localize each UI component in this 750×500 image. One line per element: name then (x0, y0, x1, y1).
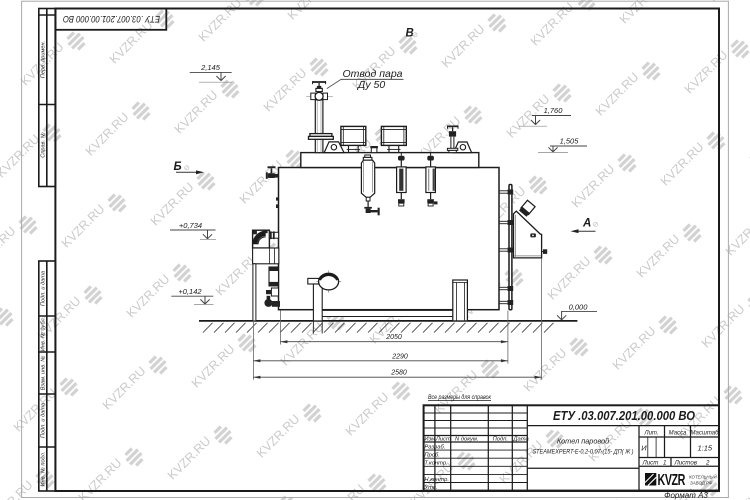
svg-text:KVZR.RU: KVZR.RU (740, 464, 750, 500)
svg-text:KVZR.RU: KVZR.RU (432, 368, 481, 417)
svg-text:+0,734: +0,734 (179, 221, 202, 230)
svg-text:STEAMEXPERT-E-0,2-0,07-(15- ДП: STEAMEXPERT-E-0,2-0,07-(15- ДП( Ж ) (533, 449, 634, 456)
svg-text:Инв. № дубл.: Инв. № дубл. (40, 317, 46, 351)
svg-text:Лист: Лист (435, 437, 451, 443)
svg-text:Взам. инв. №: Взам. инв. № (40, 356, 46, 391)
svg-text:KVZR.RU: KVZR.RU (83, 110, 132, 159)
svg-text:Проб.: Проб. (424, 453, 440, 459)
svg-text:2290: 2290 (391, 353, 408, 360)
svg-text:KVZR.RU: KVZR.RU (634, 232, 683, 281)
svg-text:Подп.: Подп. (493, 437, 508, 443)
svg-text:KVZR.RU: KVZR.RU (504, 92, 553, 141)
svg-text:Формат А3: Формат А3 (664, 491, 708, 500)
svg-text:Подп. и дата: Подп. и дата (40, 403, 46, 438)
svg-text:KVZR.RU: KVZR.RU (521, 346, 570, 395)
svg-text:ЕТУ .03.007.201.00.000 ВО: ЕТУ .03.007.201.00.000 ВО (553, 409, 695, 423)
svg-text:1:15: 1:15 (697, 443, 712, 452)
svg-text:1,505: 1,505 (560, 137, 580, 146)
svg-text:Справ. №: Справ. № (40, 132, 46, 157)
svg-text:Лит.: Лит. (643, 430, 658, 436)
svg-text:2: 2 (705, 460, 710, 467)
svg-text:1,760: 1,760 (544, 106, 564, 115)
svg-text:Листов: Листов (674, 460, 698, 467)
svg-text:KVZR.RU: KVZR.RU (497, 438, 546, 487)
svg-text:N докум.: N докум. (455, 437, 478, 443)
svg-text:Подп. и дата: Подп. и дата (40, 271, 46, 306)
svg-text:KVZR.RU: KVZR.RU (0, 224, 19, 273)
svg-text:KVZR.RU: KVZR.RU (0, 0, 2, 19)
svg-text:Лист: Лист (642, 460, 659, 467)
svg-text:KVZR.RU: KVZR.RU (593, 70, 642, 119)
svg-text:Все размеры для справок: Все размеры для справок (428, 393, 492, 401)
svg-text:КОТЕЛЬНЫЙ: КОТЕЛЬНЫЙ (689, 475, 717, 480)
svg-text:Б: Б (174, 161, 182, 173)
svg-text:Масштаб: Масштаб (690, 430, 719, 436)
svg-text:KVZR.RU: KVZR.RU (76, 456, 125, 500)
svg-text:KVZR.RU: KVZR.RU (100, 364, 149, 413)
svg-text:Ду 50: Ду 50 (357, 79, 386, 91)
svg-text:KVZR.RU: KVZR.RU (545, 254, 594, 303)
svg-text:KVZR.RU: KVZR.RU (261, 66, 310, 115)
svg-text:KVZR.RU: KVZR.RU (723, 210, 750, 259)
svg-text:KVZR.RU: KVZR.RU (285, 0, 334, 23)
svg-text:1: 1 (663, 460, 666, 467)
svg-text:+0,142: +0,142 (178, 287, 202, 296)
svg-text:KVZR.RU: KVZR.RU (124, 272, 173, 321)
svg-text:2,145: 2,145 (200, 63, 221, 72)
svg-text:KVZR.RU: KVZR.RU (172, 88, 221, 137)
svg-text:KVZR.RU: KVZR.RU (569, 162, 618, 211)
svg-text:KVZR.RU: KVZR.RU (165, 434, 214, 483)
svg-text:KVZR.RU: KVZR.RU (343, 390, 392, 439)
svg-text:KVZR.RU: KVZR.RU (658, 140, 707, 189)
svg-text:KVZR.RU: KVZR.RU (374, 0, 423, 1)
svg-text:ЕТУ .03.007.201.00.000 ВО: ЕТУ .03.007.201.00.000 ВО (63, 14, 160, 24)
svg-text:Котел паровой: Котел паровой (557, 437, 609, 446)
svg-text:Инв. № подл.: Инв. № подл. (40, 452, 46, 487)
svg-text:KVZR.RU: KVZR.RU (682, 48, 731, 97)
svg-text:Н.контр.: Н.контр. (424, 477, 449, 483)
svg-text:KVZR.RU: KVZR.RU (59, 202, 108, 251)
svg-text:KVZR.RU: KVZR.RU (107, 18, 156, 67)
svg-text:0,000: 0,000 (569, 302, 589, 311)
svg-text:KVZR.RU: KVZR.RU (189, 342, 238, 391)
svg-text:KVZR.RU: KVZR.RU (11, 386, 60, 435)
svg-text:KVZR: KVZR (658, 472, 686, 489)
svg-text:Утв.: Утв. (423, 485, 437, 491)
svg-text:Масса: Масса (669, 430, 687, 436)
svg-text:KVZR.RU: KVZR.RU (196, 0, 245, 45)
svg-text:И: И (641, 443, 647, 452)
svg-text:ЗАВОД.РФ: ЗАВОД.РФ (690, 481, 713, 486)
svg-text:2580: 2580 (390, 370, 407, 377)
svg-text:KVZR.RU: KVZR.RU (254, 412, 303, 461)
svg-text:KVZR.RU: KVZR.RU (699, 302, 748, 351)
svg-text:Т.контр.: Т.контр. (424, 461, 447, 467)
svg-text:KVZR.RU: KVZR.RU (617, 0, 666, 27)
svg-text:KVZR.RU: KVZR.RU (528, 0, 577, 49)
svg-text:Разраб.: Разраб. (424, 445, 445, 451)
svg-text:А: А (582, 217, 591, 229)
svg-text:В: В (406, 28, 414, 40)
svg-text:2050: 2050 (385, 334, 402, 341)
svg-text:Дата: Дата (512, 437, 529, 443)
svg-text:KVZR.RU: KVZR.RU (610, 324, 659, 373)
svg-text:KVZR.RU: KVZR.RU (0, 478, 36, 500)
svg-text:KVZR.RU: KVZR.RU (439, 22, 488, 71)
svg-text:Перв. примен.: Перв. примен. (40, 41, 46, 78)
